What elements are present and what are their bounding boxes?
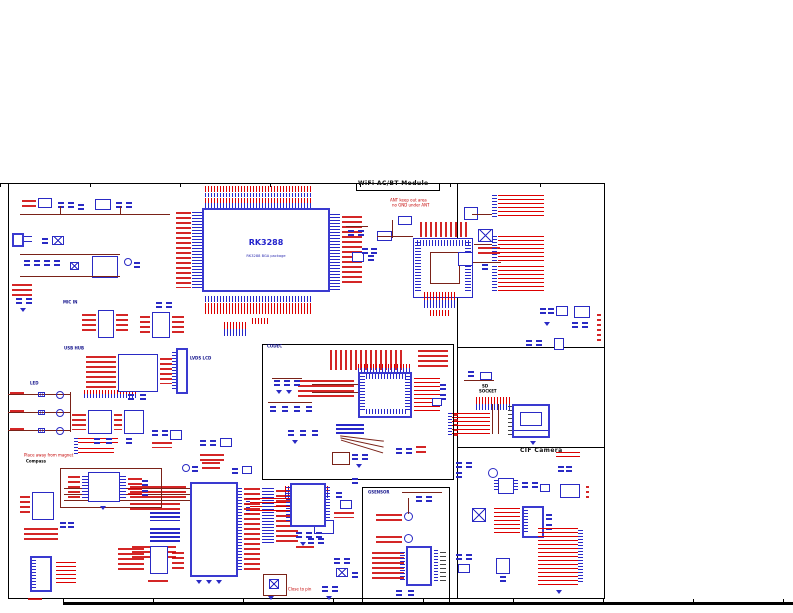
lvds-lcd-label: LVDS LCD <box>190 357 211 361</box>
sheet-title: WiFi AC/BT Module <box>358 180 429 187</box>
capacitor <box>456 472 462 478</box>
capacitor <box>572 322 578 328</box>
pin-array <box>400 552 405 580</box>
net-label <box>10 410 24 414</box>
capacitor <box>371 248 377 254</box>
capacitor <box>526 340 532 346</box>
net-label-column <box>298 380 354 398</box>
pin-array <box>492 266 497 293</box>
soc-package-label: RK3288 BGA package <box>228 254 305 258</box>
capacitor <box>522 482 528 488</box>
capacitor <box>116 202 122 208</box>
ground-symbol <box>530 441 536 445</box>
capacitor <box>58 202 64 208</box>
wire <box>60 206 61 214</box>
capacitor <box>362 248 368 254</box>
compass-label: Compass <box>26 460 46 464</box>
capacitor <box>416 496 422 502</box>
module-shield-outline <box>430 252 460 284</box>
pin-array <box>430 310 450 316</box>
dc-jack-body <box>12 233 24 247</box>
capacitor <box>558 466 564 472</box>
capacitor <box>308 538 314 544</box>
bus-block <box>336 424 364 436</box>
wire <box>312 384 358 385</box>
pin-array <box>405 376 410 412</box>
soc-chip-body <box>202 208 330 292</box>
net-label <box>202 462 220 472</box>
small-ic <box>98 310 114 338</box>
wire <box>120 206 121 214</box>
capacitor <box>344 558 350 564</box>
pin-array <box>366 374 406 379</box>
mic-in-label: MIC IN <box>63 301 77 305</box>
capacitor <box>94 438 100 444</box>
net-label <box>152 442 172 448</box>
small-ic <box>540 484 550 492</box>
small-ic <box>88 410 112 434</box>
close-to-pin-note: Close to pin <box>288 588 311 592</box>
small-ic <box>220 438 232 447</box>
usb-connector-symbol <box>398 216 412 225</box>
pin-array <box>224 322 246 329</box>
capacitor <box>456 554 462 560</box>
net-label <box>418 350 448 368</box>
ground-symbol <box>292 440 298 444</box>
compass-note: Place away from magnet <box>24 454 73 458</box>
mic-jack-outline <box>332 452 350 465</box>
wire <box>272 378 302 379</box>
capacitor <box>426 496 432 502</box>
net-label-vertical <box>586 486 589 500</box>
net-label-column <box>114 414 122 430</box>
capacitor <box>126 438 132 444</box>
net-label-column <box>72 414 86 430</box>
transistor-symbol <box>404 534 413 543</box>
capacitor <box>294 380 300 386</box>
wire <box>70 392 71 432</box>
small-ic <box>124 410 144 434</box>
signal-bus <box>556 452 580 460</box>
capacitor <box>500 576 506 582</box>
ground-symbol <box>286 390 292 394</box>
net-label-column <box>118 548 144 570</box>
capacitor <box>536 340 542 346</box>
crystal-symbol <box>472 508 486 522</box>
capacitor <box>482 264 488 270</box>
net-label <box>200 454 224 462</box>
signal-bus <box>56 562 76 586</box>
net-label <box>148 580 168 584</box>
capacitor <box>408 590 414 596</box>
capacitor <box>34 260 40 266</box>
pmu-chip-body <box>190 482 238 577</box>
crystal-symbol <box>269 579 279 589</box>
ground-symbol <box>20 308 26 312</box>
capacitor <box>348 230 354 236</box>
net-label <box>416 446 426 454</box>
wire <box>312 392 358 393</box>
capacitor <box>42 238 48 244</box>
lvds-connector-body <box>176 348 188 394</box>
wire <box>498 404 499 434</box>
transistor-symbol <box>56 409 64 417</box>
pin-array <box>476 397 510 404</box>
net-label-column <box>172 552 184 570</box>
pin-array <box>205 193 312 197</box>
capacitor <box>282 406 288 412</box>
capacitor <box>546 514 552 520</box>
net-label <box>10 392 24 396</box>
net-label-column <box>420 222 470 237</box>
small-ic <box>170 430 182 440</box>
wire <box>268 402 312 403</box>
capacitor <box>306 406 312 412</box>
capacitor <box>332 586 338 592</box>
ground-symbol <box>196 580 202 584</box>
pin-array <box>205 303 312 314</box>
capacitor <box>352 478 358 484</box>
small-ic <box>554 338 564 350</box>
codec-label: CODEC <box>267 345 282 349</box>
sd-socket-label-2: SOCKET <box>479 390 497 394</box>
wire <box>377 236 413 237</box>
capacitor <box>300 430 306 436</box>
small-ic <box>560 484 580 498</box>
capacitor <box>54 260 60 266</box>
pin-array <box>424 292 456 300</box>
capacitor <box>232 468 238 474</box>
capacitor <box>358 230 364 236</box>
capacitor <box>312 430 318 436</box>
led-symbol <box>38 428 45 433</box>
pin-array <box>415 242 421 292</box>
diode-symbol <box>70 262 79 270</box>
capacitor <box>68 522 74 528</box>
pin-array <box>465 242 471 292</box>
pin-array <box>205 186 312 192</box>
wire <box>20 276 120 277</box>
frame-left-line <box>8 184 9 599</box>
pin-array <box>82 476 88 498</box>
pin-array <box>358 368 412 372</box>
capacitor <box>468 371 474 377</box>
capacitor <box>44 260 50 266</box>
small-ic <box>38 198 52 208</box>
pin-array <box>330 214 340 290</box>
net-label-column <box>140 316 150 334</box>
gsensor-label: GSENSOR <box>368 491 389 495</box>
wire <box>464 380 494 381</box>
net-label <box>10 428 24 432</box>
wire <box>24 236 32 237</box>
capacitor <box>126 202 132 208</box>
capacitor <box>142 480 148 486</box>
ground-symbol <box>544 322 550 326</box>
net-label-column <box>86 356 116 388</box>
small-ic <box>92 256 118 278</box>
net-label-vertical <box>597 314 601 342</box>
pin-array <box>224 329 246 336</box>
bus-block <box>150 512 180 521</box>
usb-hub-label: USB HUB <box>64 347 84 351</box>
capacitor <box>466 462 472 468</box>
transistor-symbol <box>56 391 64 399</box>
crystal-symbol <box>336 568 348 577</box>
pin-array <box>417 240 469 246</box>
capacitor <box>78 204 84 210</box>
capacitor <box>68 202 74 208</box>
capacitor <box>396 448 402 454</box>
pin-array <box>508 406 512 436</box>
small-ic <box>480 372 492 380</box>
capacitor <box>140 394 146 400</box>
small-ic <box>498 478 514 494</box>
capacitor <box>362 454 368 460</box>
capacitor <box>294 406 300 412</box>
net-label <box>12 284 32 296</box>
sd-socket-line <box>514 430 548 431</box>
net-label-column <box>172 316 184 334</box>
pin-array <box>205 203 312 208</box>
ground-symbol <box>556 590 562 594</box>
capacitor <box>440 384 446 390</box>
pin-array <box>524 510 528 534</box>
ground-symbol <box>206 580 212 584</box>
net-label <box>376 514 402 522</box>
wire <box>24 241 32 242</box>
frame-right-line <box>604 184 605 599</box>
gsensor-chip-body <box>406 546 432 586</box>
capacitor <box>162 430 168 436</box>
pin-array <box>514 480 518 492</box>
pin-array <box>238 488 242 572</box>
capacitor <box>296 532 302 538</box>
capacitor <box>274 380 280 386</box>
small-ic <box>432 398 442 406</box>
capacitor <box>200 440 206 446</box>
ground-symbol <box>326 596 332 600</box>
signal-bus <box>78 448 114 456</box>
capacitor <box>540 308 546 314</box>
capacitor <box>306 532 312 538</box>
wire <box>402 492 442 493</box>
small-ic <box>574 306 590 318</box>
pin-array <box>262 488 274 544</box>
capacitor <box>532 482 538 488</box>
wire <box>492 404 493 434</box>
wire <box>20 214 170 215</box>
pin-array <box>286 487 290 523</box>
capacitor <box>192 466 198 472</box>
small-ic <box>150 546 168 574</box>
secondary-ic-body <box>290 483 326 527</box>
capacitor <box>210 440 216 446</box>
small-ic <box>32 492 54 520</box>
led-symbol <box>38 392 45 397</box>
signal-bus <box>498 236 544 261</box>
small-ic <box>152 312 170 338</box>
pin-array <box>366 409 406 414</box>
capacitor <box>270 406 276 412</box>
ground-symbol <box>216 580 222 584</box>
capacitor <box>406 448 412 454</box>
pin-array <box>120 476 126 498</box>
net-label-column <box>24 528 58 542</box>
transistor-symbol <box>488 468 498 478</box>
net-label <box>22 200 36 208</box>
capacitor <box>368 255 374 261</box>
net-label <box>376 536 402 544</box>
inductor-symbol <box>124 258 132 266</box>
net-label-vertical <box>454 414 458 436</box>
capacitor <box>548 308 554 314</box>
crystal-symbol <box>478 229 493 242</box>
net-label-column <box>82 314 96 334</box>
net-label-column <box>116 314 128 334</box>
pin-array <box>434 550 438 582</box>
capacitor <box>106 438 112 444</box>
net-label-column <box>160 358 172 384</box>
capacitor <box>128 394 134 400</box>
signal-bus <box>494 508 520 536</box>
frame-divider-wifi-sd <box>457 347 604 348</box>
signal-bus <box>414 378 440 412</box>
ground-symbol <box>276 390 282 394</box>
capacitor <box>322 586 328 592</box>
net-label <box>28 598 42 602</box>
wire <box>346 226 368 227</box>
pin-array <box>252 318 268 324</box>
small-ic <box>242 466 252 474</box>
transistor-symbol <box>56 427 64 435</box>
wire <box>408 498 409 514</box>
led-label: LED <box>30 382 39 386</box>
net-label-column <box>68 476 80 498</box>
capacitor <box>26 298 32 304</box>
net-label-column <box>20 496 30 516</box>
pin-array <box>494 480 498 492</box>
wire <box>474 244 492 245</box>
net-label-column <box>244 488 260 572</box>
capacitor <box>318 538 324 544</box>
ground-symbol <box>300 542 306 546</box>
sd-socket-inner <box>520 412 542 426</box>
compass-ic-body <box>88 472 120 502</box>
signal-bus <box>498 266 544 293</box>
schematic-sheet: WiFi AC/BT Module RK3288 RK3288 BGA pack… <box>0 0 793 613</box>
capacitor <box>456 462 462 468</box>
capacitor <box>134 262 140 268</box>
wire <box>473 262 501 263</box>
small-ic <box>458 564 470 573</box>
diode-symbol <box>52 236 64 245</box>
capacitor <box>16 298 22 304</box>
pin-array <box>172 352 176 390</box>
small-ic <box>458 252 473 266</box>
pin-array <box>326 487 330 523</box>
pin-array <box>578 530 583 584</box>
capacitor <box>284 380 290 386</box>
small-ic <box>496 558 510 574</box>
small-ic <box>95 199 111 210</box>
capacitor <box>352 454 358 460</box>
pin-array <box>205 296 312 302</box>
capacitor <box>334 558 340 564</box>
signal-bus <box>538 528 578 586</box>
small-ic <box>340 500 352 509</box>
pin-array <box>360 376 365 412</box>
net-label <box>334 512 354 518</box>
ground-symbol <box>356 464 362 468</box>
soc-name: RK3288 <box>202 238 330 247</box>
wifi-note-line2: no GND under ANT <box>392 204 429 208</box>
capacitor <box>336 492 342 498</box>
capacitor <box>166 302 172 308</box>
bus-block <box>150 528 180 542</box>
net-label-column <box>176 212 191 288</box>
signal-bus <box>498 195 544 217</box>
transistor-symbol <box>182 464 190 472</box>
led-symbol <box>38 410 45 415</box>
capacitor <box>288 430 294 436</box>
capacitor <box>316 532 322 538</box>
capacitor <box>582 322 588 328</box>
capacitor <box>152 430 158 436</box>
capacitor <box>24 260 30 266</box>
capacitor <box>352 572 358 578</box>
capacitor <box>396 590 402 596</box>
capacitor <box>466 554 472 560</box>
capacitor <box>156 302 162 308</box>
pin-array <box>424 300 456 308</box>
wire <box>472 214 492 215</box>
pin-array <box>476 404 510 410</box>
capacitor <box>142 490 148 496</box>
ground-symbol <box>268 596 274 600</box>
wire <box>20 254 120 255</box>
pin-array <box>32 560 36 588</box>
small-ic <box>556 306 568 316</box>
capacitor <box>566 466 572 472</box>
usb-hub-chip-body <box>118 354 158 392</box>
ground-symbol <box>100 506 106 510</box>
net-label <box>296 546 314 550</box>
capacitor <box>60 522 66 528</box>
pin-array <box>192 212 202 290</box>
pin-array <box>492 195 497 217</box>
net-label-column <box>128 478 142 496</box>
pin-name-column <box>440 552 446 582</box>
